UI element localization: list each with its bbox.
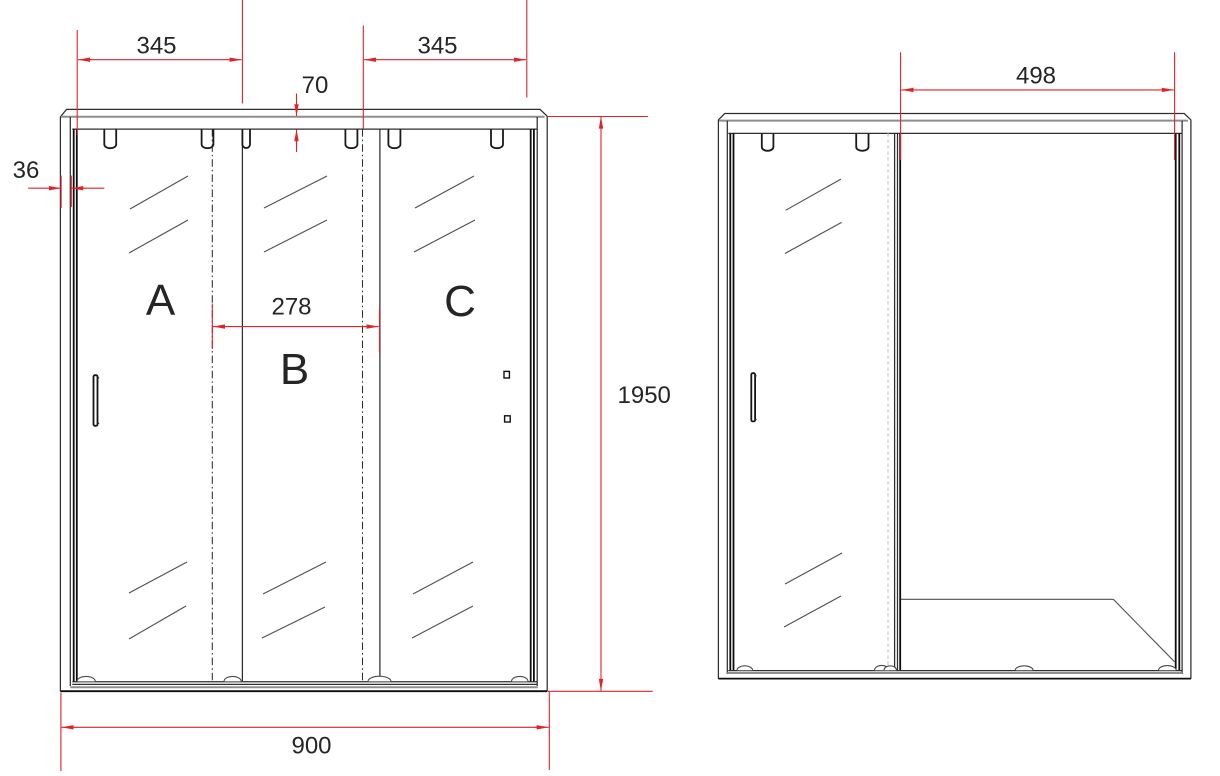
svg-text:A: A	[146, 276, 176, 325]
svg-text:345: 345	[417, 33, 457, 60]
svg-text:900: 900	[291, 733, 331, 760]
svg-text:B: B	[280, 345, 309, 394]
svg-text:498: 498	[1016, 63, 1056, 90]
svg-text:278: 278	[271, 294, 311, 321]
svg-text:1950: 1950	[618, 382, 671, 409]
svg-text:70: 70	[302, 72, 329, 99]
svg-text:36: 36	[13, 157, 40, 184]
svg-text:C: C	[444, 277, 476, 326]
svg-text:345: 345	[136, 33, 176, 60]
